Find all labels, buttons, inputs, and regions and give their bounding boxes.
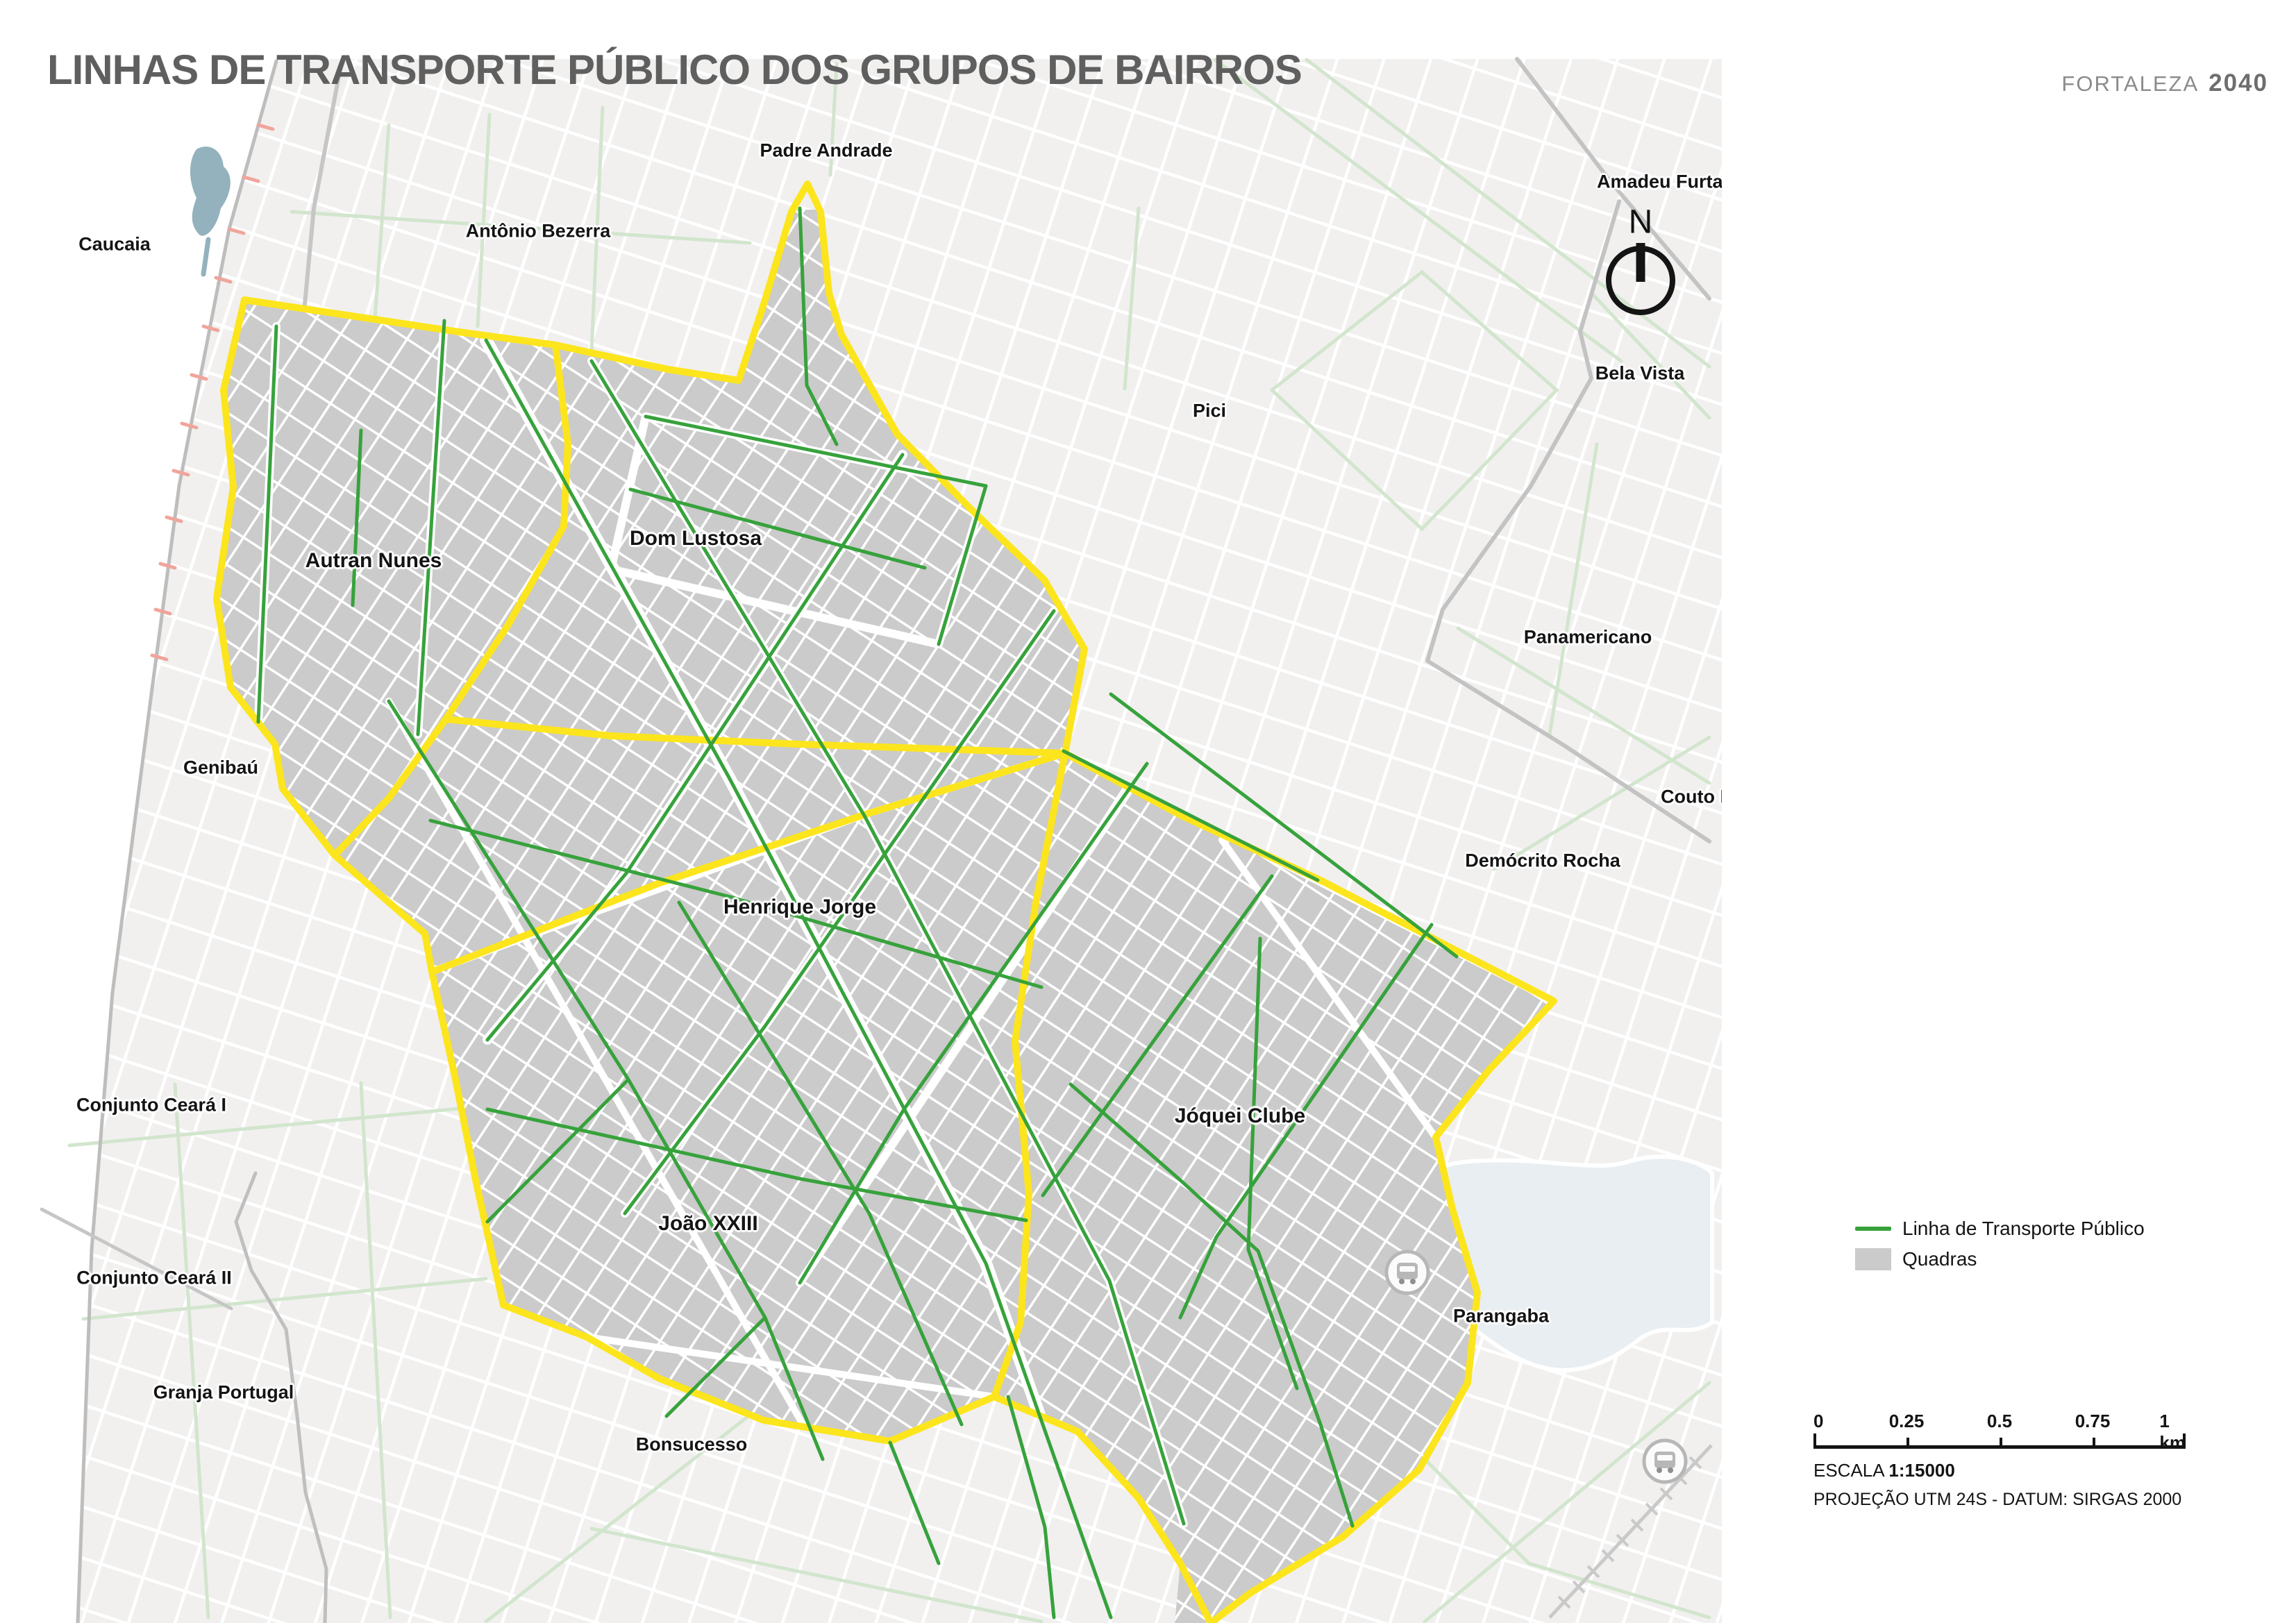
projection-text: PROJEÇÃO UTM 24S - DATUM: SIRGAS 2000 bbox=[1813, 1490, 2186, 1510]
map-label-bela-vista: Bela Vista bbox=[1595, 363, 1685, 385]
transit-line-swatch bbox=[1855, 1227, 1891, 1231]
map-label-parangaba: Parangaba bbox=[1453, 1306, 1549, 1327]
map-canvas bbox=[0, 0, 1722, 1623]
scale-value: 1:15000 bbox=[1888, 1460, 1954, 1481]
scale-bar-line bbox=[1813, 1433, 2186, 1449]
map-label-amadeu-furtado: Amadeu Furta bbox=[1597, 171, 1722, 193]
scale-text: ESCALA 1:15000 bbox=[1813, 1460, 2186, 1481]
legend-label: Linha de Transporte Público bbox=[1902, 1218, 2145, 1240]
map-label-joquei-clube: Jóquei Clube bbox=[1175, 1104, 1305, 1128]
map-label-dom-lustosa: Dom Lustosa bbox=[630, 527, 762, 550]
map-label-panamericano: Panamericano bbox=[1524, 627, 1652, 648]
page-title: LINHAS DE TRANSPORTE PÚBLICO DOS GRUPOS … bbox=[47, 46, 1302, 94]
map-label-bonsucesso: Bonsucesso bbox=[636, 1434, 748, 1456]
brand-year: 2040 bbox=[2209, 69, 2268, 97]
map-label-pici: Pici bbox=[1193, 401, 1226, 422]
map-label-autran-nunes: Autran Nunes bbox=[305, 549, 442, 573]
brand-name: FORTALEZA bbox=[2061, 72, 2199, 96]
legend: Linha de Transporte Público Quadras bbox=[1855, 1213, 2145, 1275]
map-area: Caucaia Antônio Bezerra Padre Andrade Am… bbox=[0, 0, 1722, 1623]
map-label-padre-andrade: Padre Andrade bbox=[760, 140, 892, 162]
legend-label: Quadras bbox=[1902, 1248, 1977, 1270]
bus-station-icon bbox=[1644, 1440, 1686, 1482]
map-label-couto-fernandes: Couto Ferna bbox=[1661, 787, 1722, 808]
map-label-genibau: Genibaú bbox=[183, 757, 258, 779]
bus-station-icon bbox=[1386, 1252, 1428, 1293]
map-label-conjunto-ceara-1: Conjunto Ceará I bbox=[76, 1095, 226, 1116]
legend-item-quadras: Quadras bbox=[1855, 1244, 2145, 1275]
legend-item-transit-line: Linha de Transporte Público bbox=[1855, 1213, 2145, 1244]
scale-tick-label: 0.75 bbox=[2075, 1411, 2111, 1432]
north-label: N bbox=[1629, 203, 1653, 242]
scale-tick-label: 0.5 bbox=[1987, 1411, 2012, 1432]
scale-tick-label: 0.25 bbox=[1889, 1411, 1925, 1432]
scale-tick-labels: 0 0.25 0.5 0.75 1 km bbox=[1813, 1411, 2186, 1433]
scale-prefix: ESCALA bbox=[1813, 1460, 1884, 1481]
scale-bar: 0 0.25 0.5 0.75 1 km ESCALA 1:15000 PROJ… bbox=[1813, 1411, 2186, 1510]
poster-page: Caucaia Antônio Bezerra Padre Andrade Am… bbox=[0, 0, 2296, 1623]
brand-logo: FORTALEZA 2040 bbox=[2061, 69, 2268, 97]
map-label-conjunto-ceara-2: Conjunto Ceará II bbox=[76, 1268, 232, 1289]
scale-tick-label: 0 bbox=[1813, 1411, 1823, 1432]
quadras-swatch bbox=[1855, 1248, 1891, 1270]
map-label-caucaia: Caucaia bbox=[78, 234, 151, 255]
map-label-henrique-jorge: Henrique Jorge bbox=[723, 895, 876, 919]
map-label-joao-xxiii: João XXIII bbox=[658, 1212, 757, 1236]
map-label-granja-portugal: Granja Portugal bbox=[153, 1382, 294, 1404]
map-label-democrito-rocha: Demócrito Rocha bbox=[1465, 850, 1620, 872]
map-label-antonio-bezerra: Antônio Bezerra bbox=[466, 221, 611, 242]
